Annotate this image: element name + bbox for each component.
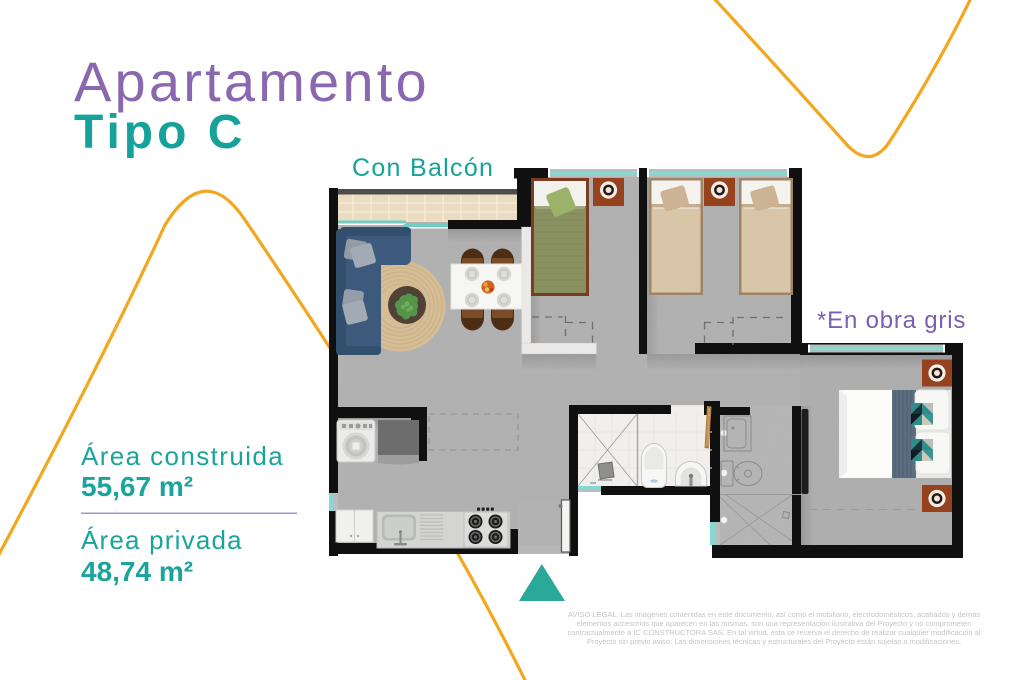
svg-text:Área privada: Área privada	[81, 525, 243, 555]
svg-text:Proyecto sin previo aviso. Las: Proyecto sin previo aviso. Las dimension…	[587, 637, 961, 646]
svg-text:Con Balcón: Con Balcón	[352, 154, 494, 182]
svg-text:48,74 m²: 48,74 m²	[81, 556, 193, 587]
svg-text:contractualmente a IC CONSTRUC: contractualmente a IC CONSTRUCTORA SAS. …	[568, 628, 981, 637]
svg-text:*En obra gris: *En obra gris	[817, 307, 966, 334]
svg-text:AVISO LEGAL: Las imágenes cont: AVISO LEGAL: Las imágenes contenidas en …	[568, 610, 980, 619]
svg-text:55,67 m²: 55,67 m²	[81, 471, 193, 502]
svg-text:Apartamento: Apartamento	[74, 50, 430, 113]
svg-text:Tipo C: Tipo C	[74, 106, 246, 159]
svg-text:Área construida: Área construida	[81, 441, 284, 471]
svg-text:elementos accesorios que apare: elementos accesorios que aparecen en las…	[577, 619, 972, 628]
